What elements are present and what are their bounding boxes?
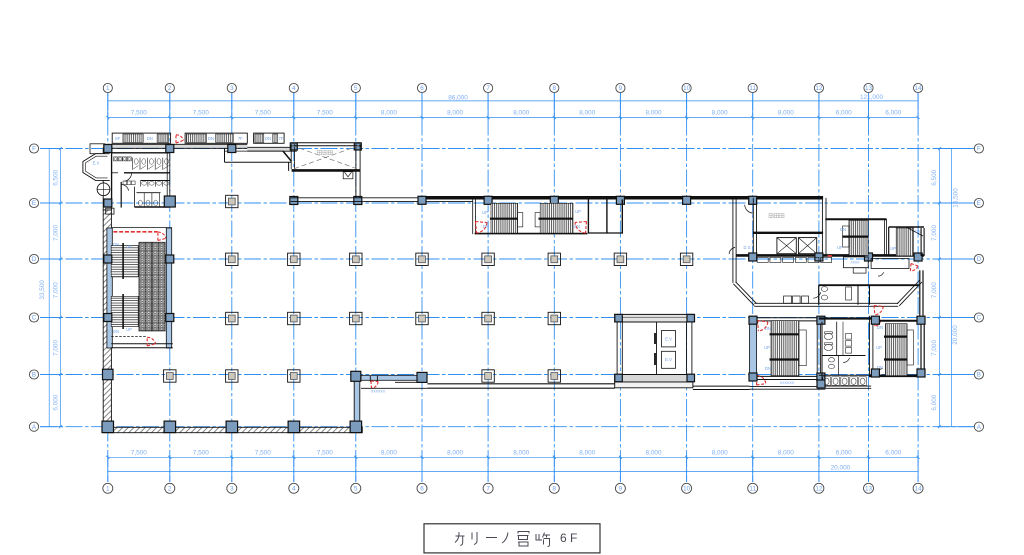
svg-text:DN: DN: [915, 229, 921, 234]
svg-text:14: 14: [915, 85, 923, 92]
svg-text:B: B: [32, 372, 36, 379]
svg-text:DN: DN: [147, 136, 153, 141]
svg-text:13,500: 13,500: [953, 188, 960, 208]
svg-text:5: 5: [354, 85, 358, 92]
svg-text:8,000: 8,000: [646, 449, 662, 456]
svg-text:UP: UP: [126, 327, 132, 332]
svg-text:DN: DN: [483, 224, 489, 229]
svg-text:6,000: 6,000: [836, 449, 852, 456]
svg-text:7,500: 7,500: [255, 449, 271, 456]
svg-text:UP: UP: [126, 244, 132, 249]
svg-text:121,000: 121,000: [860, 94, 884, 101]
svg-text:8,000: 8,000: [778, 110, 794, 117]
svg-text:86,000: 86,000: [448, 94, 468, 101]
svg-text:7,000: 7,000: [53, 225, 60, 241]
svg-text:DN: DN: [840, 227, 846, 232]
svg-text:D: D: [32, 256, 37, 263]
svg-text:11: 11: [749, 85, 756, 92]
svg-text:8,000: 8,000: [712, 110, 728, 117]
svg-text:7,500: 7,500: [193, 110, 209, 117]
svg-text:9: 9: [619, 485, 623, 492]
svg-text:6,500: 6,500: [53, 169, 60, 185]
svg-text:UP: UP: [575, 209, 581, 214]
svg-text:10: 10: [683, 85, 691, 92]
svg-text:12: 12: [815, 85, 823, 92]
svg-text:3: 3: [230, 485, 234, 492]
svg-text:7,000: 7,000: [931, 282, 938, 298]
svg-text:XXXX: XXXX: [850, 261, 860, 265]
svg-text:12: 12: [815, 485, 823, 492]
svg-text:UP: UP: [876, 345, 882, 350]
svg-text:7,500: 7,500: [255, 110, 271, 117]
svg-text:7F: 7F: [238, 136, 243, 141]
svg-text:6: 6: [420, 485, 424, 492]
svg-text:13: 13: [865, 485, 873, 492]
svg-text:E.V: E.V: [93, 161, 100, 166]
svg-text:10: 10: [683, 485, 691, 492]
svg-text:33,500: 33,500: [39, 280, 46, 300]
svg-text:7: 7: [486, 85, 490, 92]
svg-text:6,500: 6,500: [931, 169, 938, 185]
svg-text:2: 2: [168, 85, 172, 92]
svg-text:2: 2: [168, 485, 172, 492]
svg-text:8,000: 8,000: [513, 110, 529, 117]
svg-text:8,000: 8,000: [447, 110, 463, 117]
svg-text:E.V: E.V: [665, 357, 672, 362]
svg-text:5: 5: [354, 485, 358, 492]
svg-text:7,500: 7,500: [193, 449, 209, 456]
svg-text:C: C: [977, 315, 982, 322]
svg-text:1: 1: [106, 85, 110, 92]
svg-text:8,000: 8,000: [447, 449, 463, 456]
svg-text:8,000: 8,000: [381, 110, 397, 117]
svg-text:6 F: 6 F: [560, 531, 577, 545]
svg-text:XXXXXX: XXXXXX: [371, 389, 386, 393]
svg-text:DN: DN: [113, 329, 119, 334]
svg-text:7,000: 7,000: [931, 340, 938, 356]
svg-text:DN: DN: [877, 325, 883, 330]
svg-text:8: 8: [553, 85, 557, 92]
svg-text:6,000: 6,000: [931, 394, 938, 410]
svg-text:6,000: 6,000: [885, 110, 901, 117]
svg-text:C: C: [32, 315, 37, 322]
svg-text:7F: 7F: [279, 136, 284, 141]
svg-text:E: E: [977, 200, 981, 207]
svg-text:8: 8: [553, 485, 557, 492]
svg-text:3: 3: [230, 85, 234, 92]
svg-text:UP: UP: [482, 210, 488, 215]
svg-text:20,000: 20,000: [952, 325, 959, 345]
svg-text:SF: SF: [115, 136, 121, 141]
svg-text:7,500: 7,500: [131, 110, 147, 117]
svg-text:8,000: 8,000: [778, 449, 794, 456]
svg-text:XXXXXX: XXXXXX: [780, 381, 795, 385]
svg-text:20,000: 20,000: [831, 464, 851, 471]
svg-text:F: F: [977, 146, 981, 153]
svg-text:8,000: 8,000: [646, 110, 662, 117]
svg-text:UP: UP: [837, 245, 843, 250]
svg-text:6: 6: [420, 85, 424, 92]
svg-text:6,000: 6,000: [53, 394, 60, 410]
svg-text:7: 7: [486, 485, 490, 492]
svg-text:7,500: 7,500: [317, 110, 333, 117]
svg-text:8,000: 8,000: [513, 449, 529, 456]
svg-text:7,000: 7,000: [931, 225, 938, 241]
svg-text:DN: DN: [113, 242, 119, 247]
svg-text:4: 4: [292, 485, 296, 492]
svg-text:8,000: 8,000: [381, 449, 397, 456]
svg-text:UP: UP: [764, 345, 770, 350]
svg-text:6,000: 6,000: [836, 110, 852, 117]
svg-text:F: F: [32, 146, 36, 153]
svg-text:DN: DN: [265, 136, 271, 141]
svg-text:13: 13: [865, 85, 873, 92]
svg-text:8,000: 8,000: [579, 449, 595, 456]
svg-text:14: 14: [915, 485, 923, 492]
svg-text:UP: UP: [890, 246, 896, 251]
svg-text:4: 4: [292, 85, 296, 92]
svg-text:DN: DN: [765, 366, 771, 371]
svg-text:D S: D S: [744, 245, 751, 250]
svg-text:D: D: [977, 256, 982, 263]
svg-text:7,000: 7,000: [53, 282, 60, 298]
svg-text:7,000: 7,000: [53, 340, 60, 356]
svg-text:11: 11: [749, 485, 756, 492]
svg-text:DN: DN: [208, 136, 214, 141]
svg-text:1: 1: [106, 485, 110, 492]
svg-text:6,000: 6,000: [885, 449, 901, 456]
svg-text:E: E: [32, 200, 36, 207]
svg-text:8,000: 8,000: [579, 110, 595, 117]
svg-text:B: B: [977, 372, 981, 379]
svg-text:9: 9: [619, 85, 623, 92]
svg-text:7,500: 7,500: [317, 449, 333, 456]
svg-text:7,500: 7,500: [131, 449, 147, 456]
svg-text:E.V: E.V: [665, 337, 672, 342]
svg-text:8,000: 8,000: [712, 449, 728, 456]
